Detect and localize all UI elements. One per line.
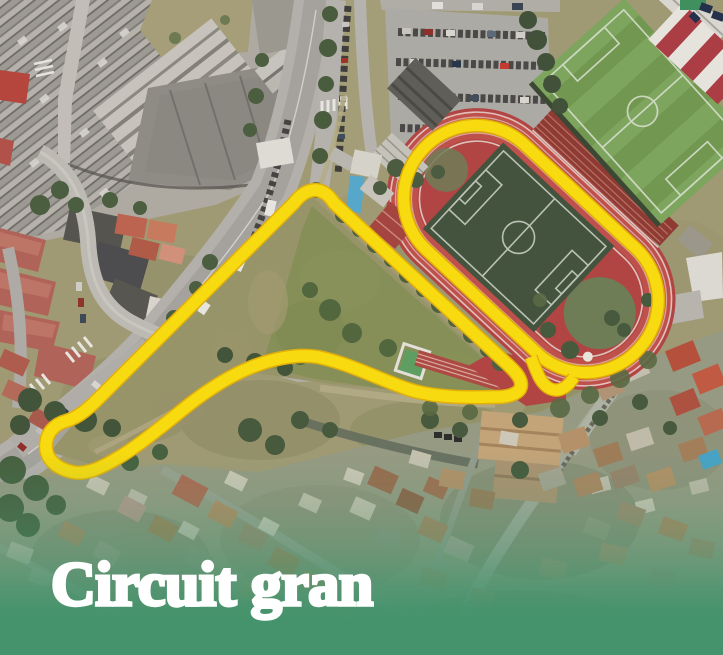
svg-text:Circuit gran: Circuit gran xyxy=(51,551,373,619)
